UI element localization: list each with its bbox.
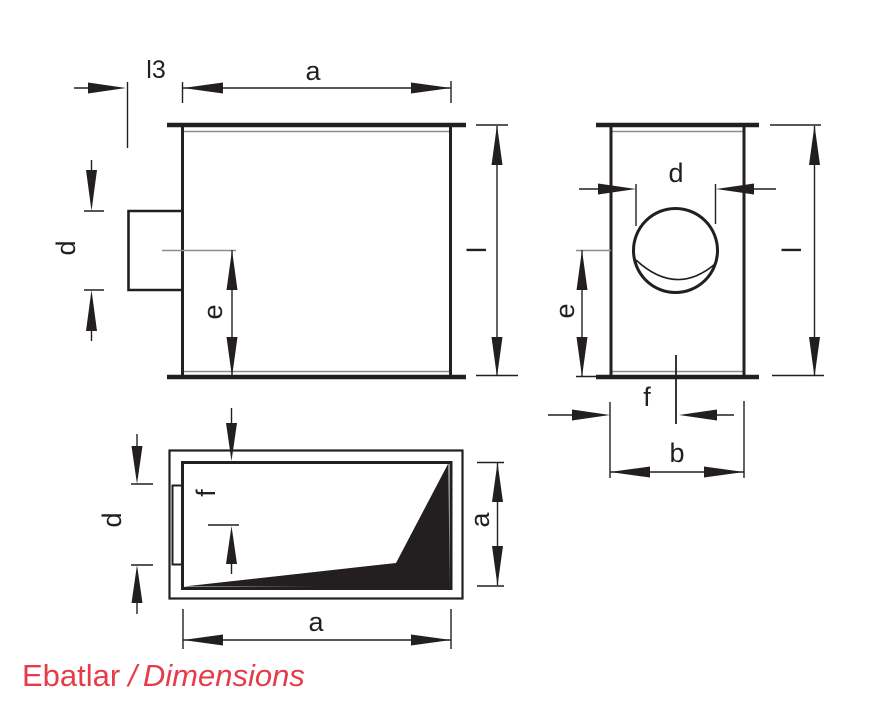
arrowhead xyxy=(86,170,97,211)
dim-b-side: b xyxy=(610,401,744,478)
dim-e-side: e xyxy=(550,250,611,377)
arrowhead xyxy=(86,290,97,331)
arrowhead xyxy=(132,565,143,603)
dim-label-d: d xyxy=(668,158,683,188)
dim-label-l: l xyxy=(777,247,807,253)
dim-l3: l3 xyxy=(74,56,166,148)
dim-f-side: f xyxy=(548,382,734,421)
dim-l-side: l xyxy=(770,125,824,377)
arrowhead xyxy=(809,337,820,377)
arrowhead xyxy=(577,250,588,290)
dim-label-b: b xyxy=(669,438,684,468)
arrowhead xyxy=(704,467,744,478)
dim-label-a: a xyxy=(308,607,324,637)
arrowhead xyxy=(610,467,650,478)
dim-label-e: e xyxy=(198,304,228,319)
arrowhead xyxy=(492,546,503,586)
arrowhead xyxy=(492,463,503,503)
dim-a-right: a xyxy=(465,463,504,587)
duct-opening-depth-arc xyxy=(636,260,715,280)
footer-caption: Ebatlar/Dimensions xyxy=(22,658,305,694)
arrowhead xyxy=(679,410,717,421)
arrowhead xyxy=(227,250,238,290)
dim-d-top: d xyxy=(97,434,153,614)
top-view: f d a a xyxy=(97,408,504,649)
arrowhead xyxy=(132,446,143,484)
dim-d-front: d xyxy=(51,160,104,341)
arrowhead xyxy=(716,184,754,195)
footer-separator: / xyxy=(128,658,137,693)
arrowhead xyxy=(183,635,223,646)
dim-d-side: d xyxy=(579,158,776,226)
arrowhead xyxy=(598,184,636,195)
dim-label-a: a xyxy=(305,56,321,86)
dim-a-top: a xyxy=(183,56,452,103)
dim-label-f: f xyxy=(191,489,221,497)
side-view: d e l f xyxy=(548,123,824,478)
dim-f-top: f xyxy=(191,408,239,574)
dim-label-a: a xyxy=(465,512,495,528)
arrowhead xyxy=(577,337,588,377)
top-duct-stub xyxy=(173,486,183,565)
dim-l-front: l xyxy=(462,125,518,377)
dim-label-d: d xyxy=(51,240,81,255)
footer-label-english: Dimensions xyxy=(143,658,305,693)
arrowhead xyxy=(492,337,503,377)
arrowhead xyxy=(809,125,820,165)
dim-label-f: f xyxy=(643,382,651,412)
arrowhead xyxy=(492,125,503,165)
arrowhead xyxy=(226,526,237,564)
dim-a-bottom: a xyxy=(183,607,451,649)
dim-label-l3: l3 xyxy=(146,56,165,84)
arrowhead xyxy=(183,83,223,94)
arrowhead xyxy=(88,83,126,94)
arrowhead xyxy=(226,423,237,461)
dim-label-d: d xyxy=(97,512,127,527)
arrowhead xyxy=(411,83,451,94)
dim-e-front: e xyxy=(198,250,238,377)
front-view: l3 a l e xyxy=(51,56,518,379)
arrowhead xyxy=(572,410,610,421)
dimension-drawing: l3 a l e xyxy=(0,0,880,706)
footer-label-turkish: Ebatlar xyxy=(22,658,120,693)
arrowhead xyxy=(411,635,451,646)
dim-label-l: l xyxy=(462,247,492,253)
dim-label-e: e xyxy=(550,303,580,318)
